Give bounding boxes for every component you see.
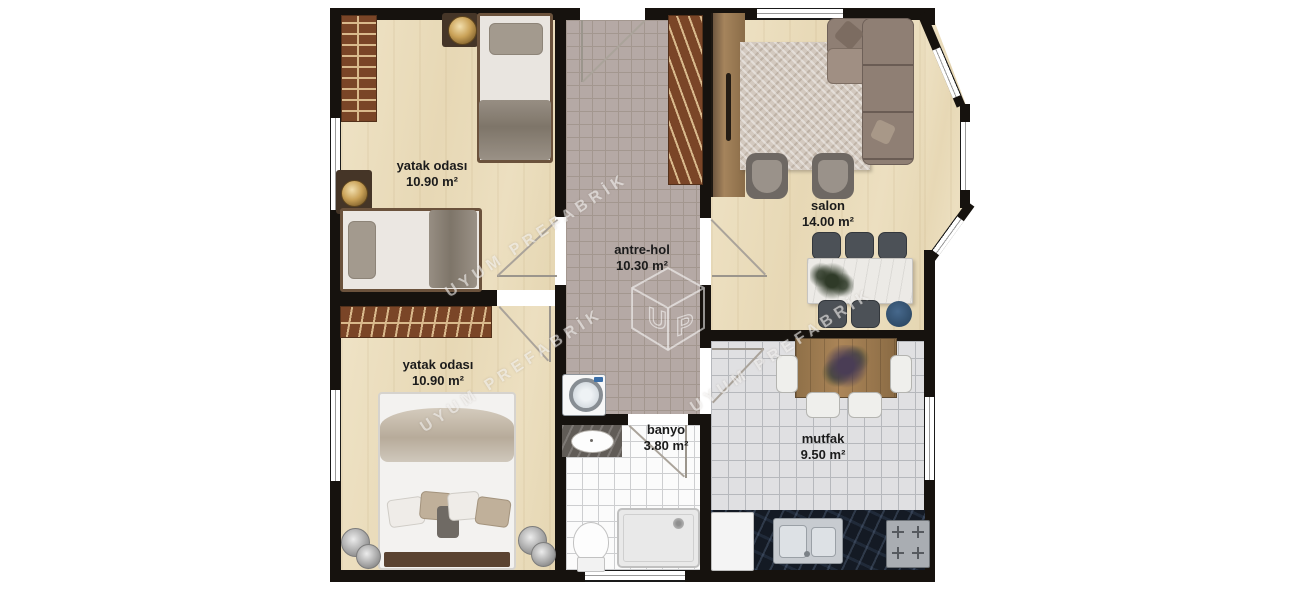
kitchen-chair <box>848 392 882 418</box>
room-area: 3.80 m² <box>621 438 711 454</box>
dining-chair <box>845 232 874 260</box>
bay-wall-middle <box>960 104 970 208</box>
floor-plan: yatak odası 10.90 m² yatak odası 10.90 m… <box>330 8 980 586</box>
door-leaf-salon <box>712 275 767 277</box>
rug-bedroom-top <box>341 15 377 122</box>
room-name: banyo <box>621 422 711 438</box>
pouf <box>531 542 556 567</box>
rug-hall-runner <box>668 15 703 185</box>
door-leaf-kitchen <box>712 348 764 350</box>
toilet-tank <box>577 557 605 572</box>
window-kitchen-right <box>924 397 935 480</box>
bathroom-sink <box>562 425 622 457</box>
refrigerator <box>711 512 754 571</box>
wardrobe-handle <box>726 73 731 141</box>
lamp-1 <box>448 16 477 45</box>
stool-blue <box>886 301 912 327</box>
single-bed-1 <box>477 13 553 163</box>
toilet <box>573 522 609 562</box>
room-area: 10.90 m² <box>352 174 512 190</box>
room-label-kitchen: mutfak 9.50 m² <box>778 431 868 463</box>
armchair-2 <box>812 153 854 199</box>
faucet <box>804 551 810 557</box>
armchair-1 <box>746 153 788 199</box>
shower-tray <box>617 508 700 568</box>
washing-machine <box>562 374 606 416</box>
room-area: 14.00 m² <box>783 214 873 230</box>
dining-chair <box>812 232 841 260</box>
dining-chair <box>878 232 907 260</box>
blanket <box>479 100 551 160</box>
armchair-seat <box>752 160 782 193</box>
room-name: salon <box>783 198 873 214</box>
sink-basin <box>779 525 807 558</box>
pillow <box>489 23 543 55</box>
headboard <box>384 552 510 567</box>
table-plant <box>810 261 854 301</box>
kitchen-sink <box>773 518 843 564</box>
bay-window-middle <box>960 122 970 190</box>
watermark-logo: U P <box>628 264 708 364</box>
rug-bedroom-bottom <box>340 306 492 338</box>
room-label-bedroom-top: yatak odası 10.90 m² <box>352 158 512 190</box>
room-name: yatak odası <box>352 158 512 174</box>
watermark-logo-letter: P <box>676 307 693 342</box>
kitchen-table <box>795 338 897 398</box>
watermark-logo-letter: U <box>648 301 667 336</box>
room-area: 9.50 m² <box>778 447 868 463</box>
room-label-salon: salon 14.00 m² <box>783 198 873 230</box>
pillow <box>348 221 376 279</box>
kitchen-chair <box>806 392 840 418</box>
room-name: antre-hol <box>562 242 722 258</box>
door-leaf-bedroom-top <box>497 275 557 277</box>
door-opening-entrance <box>580 8 645 20</box>
sofa-chaise <box>827 48 867 84</box>
pillow <box>474 496 512 528</box>
room-label-bathroom: banyo 3.80 m² <box>621 422 711 454</box>
door-leaf-entrance <box>581 20 583 82</box>
door-opening-bedroom-bottom <box>497 290 555 306</box>
pouf <box>356 544 381 569</box>
armchair-seat <box>818 160 848 193</box>
stove <box>886 520 930 568</box>
kitchen-chair <box>890 355 912 393</box>
window-bedroom-bottom-left <box>330 390 341 481</box>
room-name: mutfak <box>778 431 868 447</box>
floor-plan-canvas: yatak odası 10.90 m² yatak odası 10.90 m… <box>0 0 1296 600</box>
kitchen-plant <box>822 345 870 391</box>
sink-basin <box>811 527 836 557</box>
